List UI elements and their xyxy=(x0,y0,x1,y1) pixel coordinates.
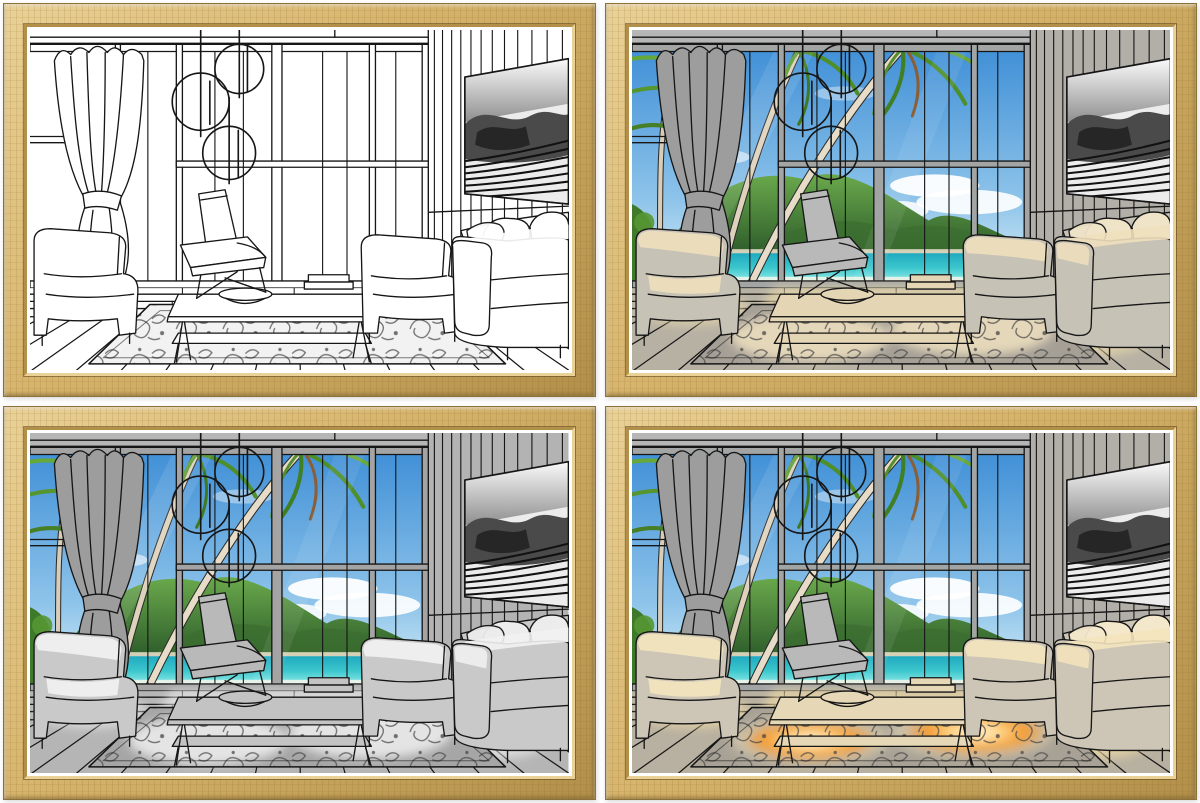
frame-inner-lip xyxy=(626,427,1177,779)
white-mat xyxy=(27,27,572,373)
white-mat xyxy=(27,430,572,776)
white-mat xyxy=(629,430,1174,776)
framed-art-top-right xyxy=(605,3,1198,397)
living-room-scene-beach-neutral xyxy=(30,433,569,773)
product-photo-grid xyxy=(0,0,1200,803)
framed-art-bottom-left xyxy=(3,406,596,800)
frame-inner-lip xyxy=(24,427,575,779)
living-room-scene-line-art xyxy=(30,30,569,370)
frame-inner-lip xyxy=(24,24,575,376)
living-room-scene-beach-warm xyxy=(632,30,1171,370)
framed-art-bottom-right xyxy=(605,406,1198,800)
living-room-scene-beach-glow xyxy=(632,433,1171,773)
framed-art-top-left xyxy=(3,3,596,397)
frame-inner-lip xyxy=(626,24,1177,376)
white-mat xyxy=(629,27,1174,373)
